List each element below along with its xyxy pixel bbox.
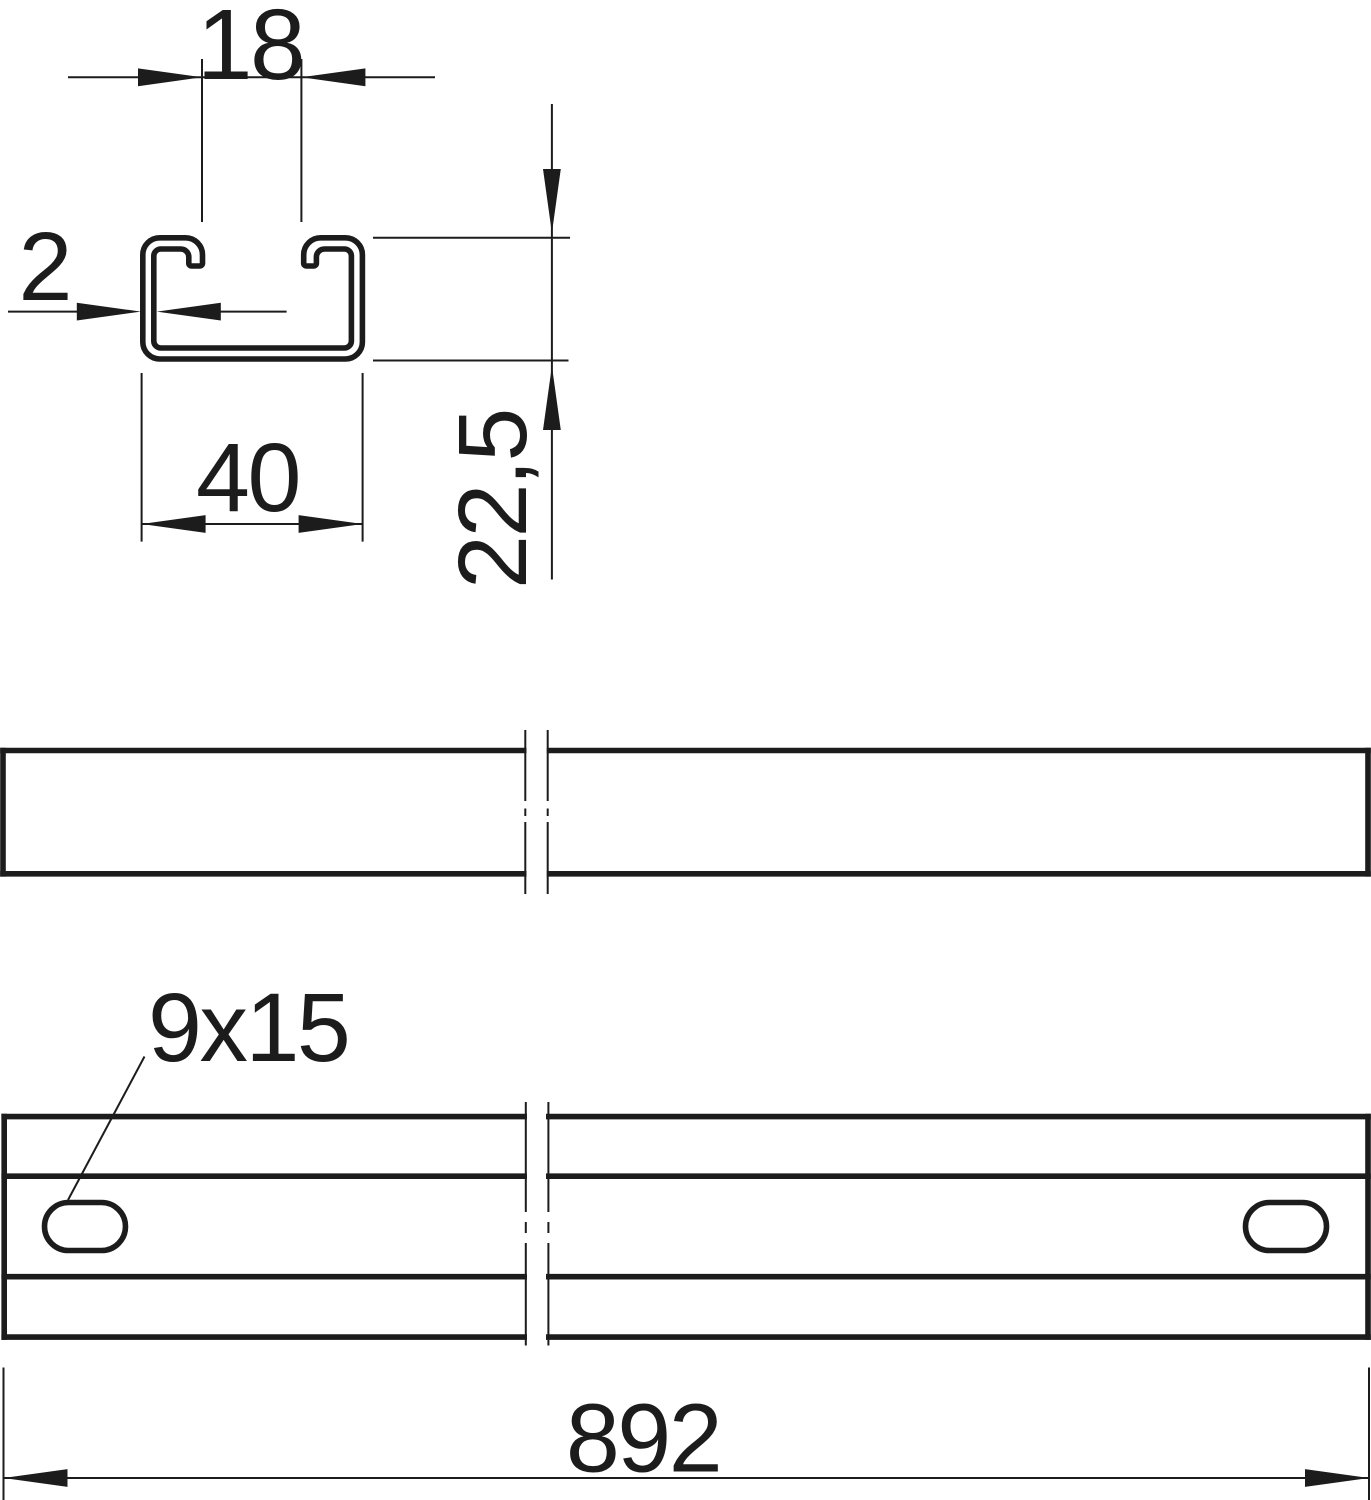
- svg-text:2: 2: [19, 212, 70, 321]
- svg-text:18: 18: [197, 0, 303, 101]
- svg-text:892: 892: [566, 1384, 720, 1493]
- svg-text:9x15: 9x15: [148, 973, 348, 1082]
- svg-text:40: 40: [196, 423, 299, 532]
- svg-text:22,5: 22,5: [438, 410, 547, 589]
